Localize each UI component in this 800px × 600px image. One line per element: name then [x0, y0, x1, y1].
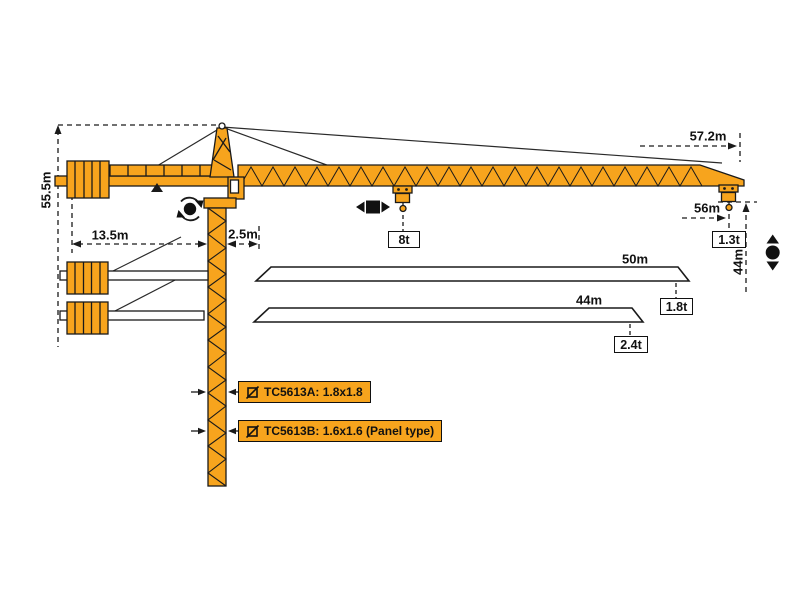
model-label: TC5613B: 1.6x1.6 (Panel type)	[264, 424, 434, 438]
hoist-icon	[766, 235, 780, 271]
jib-50-tip-load-badge: 1.8t	[660, 298, 693, 315]
arrow-right	[728, 143, 737, 150]
arrow-up	[743, 203, 750, 212]
trolley-travel-icon	[356, 201, 390, 214]
counterweight-option-1	[60, 262, 208, 294]
tip-radius-label: 56m	[694, 201, 720, 216]
jib-profile-50m	[256, 267, 689, 281]
jib-offset-label: 2.5m	[228, 227, 258, 242]
section-size-icon	[246, 425, 259, 438]
counter-radius-label: 13.5m	[92, 228, 129, 243]
jib-44-tip-load-badge: 2.4t	[614, 336, 648, 353]
jib-50-length-label: 50m	[622, 252, 648, 267]
counter-jib	[55, 161, 233, 198]
jib-44-length-label: 44m	[576, 293, 602, 308]
jib-profile-44m	[254, 308, 643, 322]
arrow-right	[198, 241, 207, 248]
model-callout-tc5613b: TC5613B: 1.6x1.6 (Panel type)	[238, 420, 442, 442]
tower-head	[210, 123, 234, 177]
arrow-left	[227, 241, 236, 248]
counterweight-option-2	[60, 302, 204, 334]
turntable	[204, 198, 236, 208]
counterweight-blocks	[67, 161, 109, 198]
arrow-left	[72, 241, 81, 248]
tip-load-badge: 1.3t	[712, 231, 746, 248]
model-label: TC5613A: 1.8x1.8	[264, 385, 363, 399]
trolley-tip	[719, 185, 738, 211]
max-load-badge: 8t	[388, 231, 420, 248]
tower-crane-diagram: 55.5m 13.5m 2.5m 57.2m 56m 44m 50m 44m 8…	[0, 0, 800, 600]
trolley-mid	[393, 186, 412, 212]
model-callout-tc5613a: TC5613A: 1.8x1.8	[238, 381, 371, 403]
tower-mast	[208, 208, 226, 486]
arrow-up	[55, 125, 62, 134]
slewing-icon	[177, 198, 204, 221]
section-size-icon	[246, 386, 259, 399]
max-radius-label: 57.2m	[690, 129, 727, 144]
operator-cab	[228, 177, 244, 199]
total-height-label: 55.5m	[39, 172, 54, 209]
arrow-right	[717, 215, 726, 222]
apex-pin	[219, 123, 225, 129]
hook-icon	[400, 203, 406, 212]
arrow-right	[249, 241, 258, 248]
hook-icon	[726, 202, 732, 211]
jib-tie-bars	[157, 127, 722, 168]
hook-height-label: 44m	[731, 249, 746, 275]
main-jib	[238, 165, 744, 186]
